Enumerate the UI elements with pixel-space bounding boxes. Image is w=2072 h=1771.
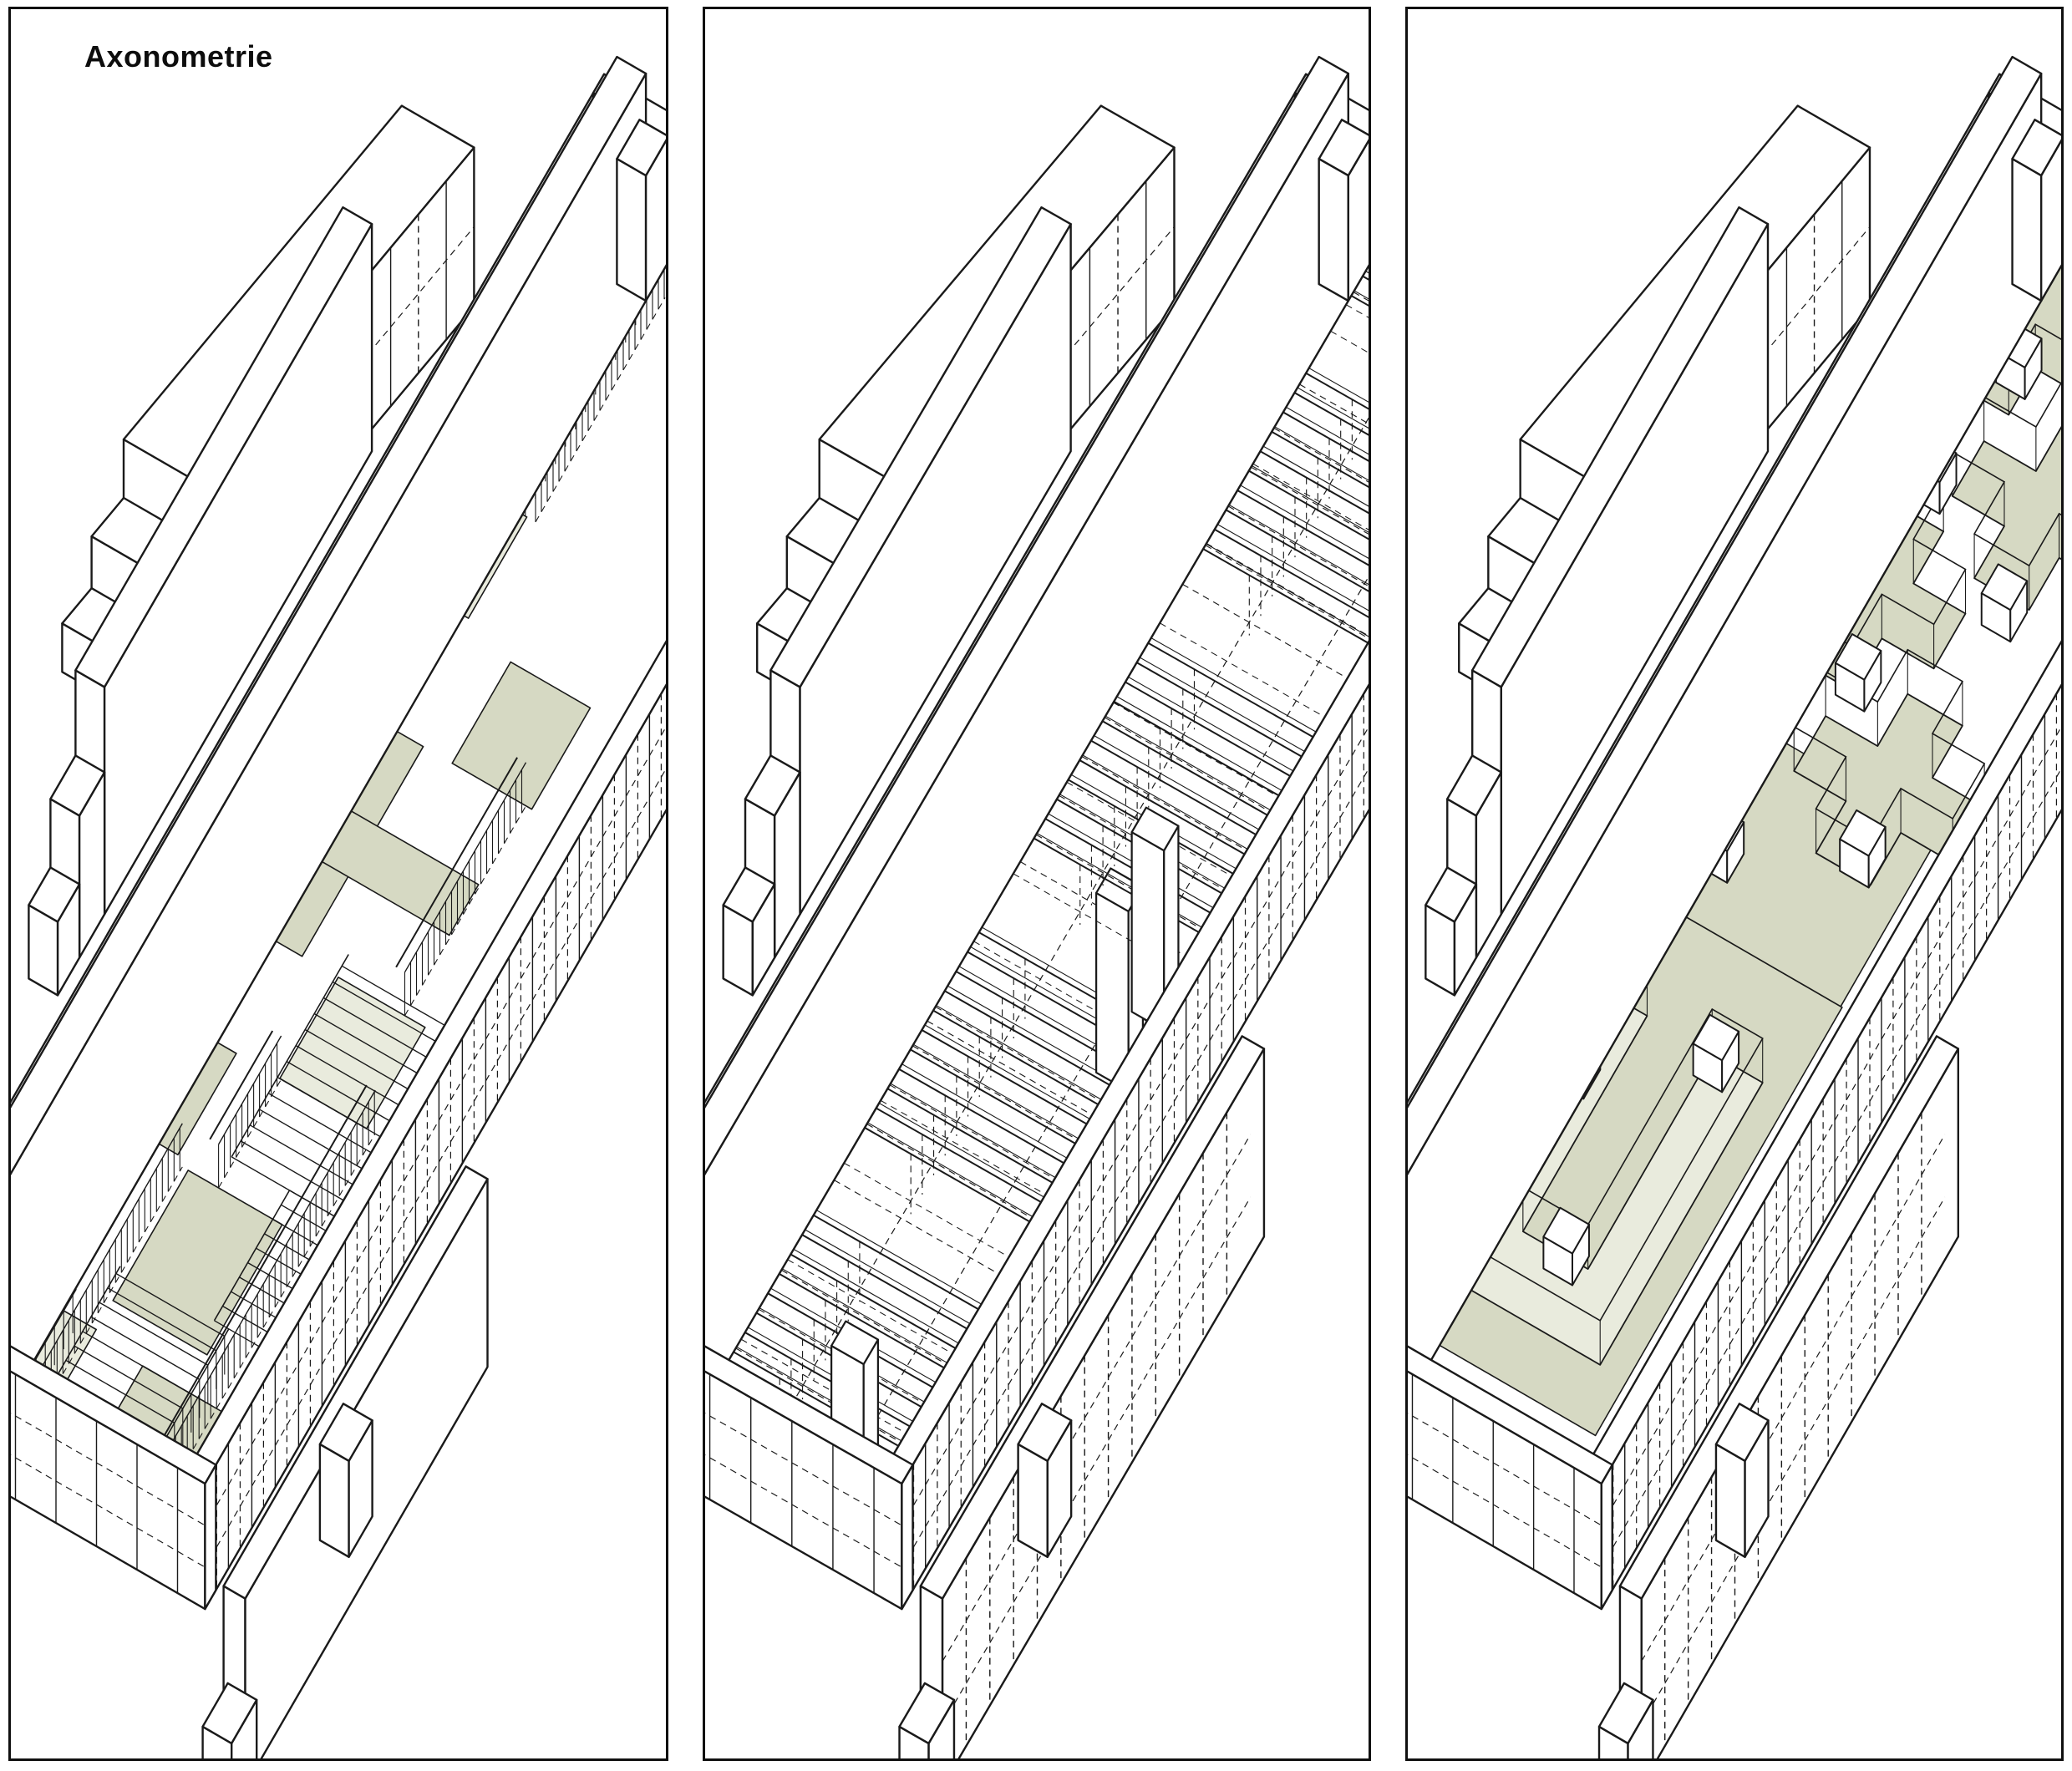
panel-axonometric-variant-2 [703, 7, 1371, 1761]
panel-axonometric-variant-3 [1405, 7, 2064, 1761]
page: Axonometrie [0, 0, 2072, 1771]
axonometric-drawing-1 [11, 9, 666, 1758]
panel-axonometric-variant-1: Axonometrie [8, 7, 668, 1761]
page-title: Axonometrie [84, 39, 273, 74]
axonometric-drawing-3 [1408, 9, 2061, 1758]
axonometric-drawing-2 [705, 9, 1369, 1758]
